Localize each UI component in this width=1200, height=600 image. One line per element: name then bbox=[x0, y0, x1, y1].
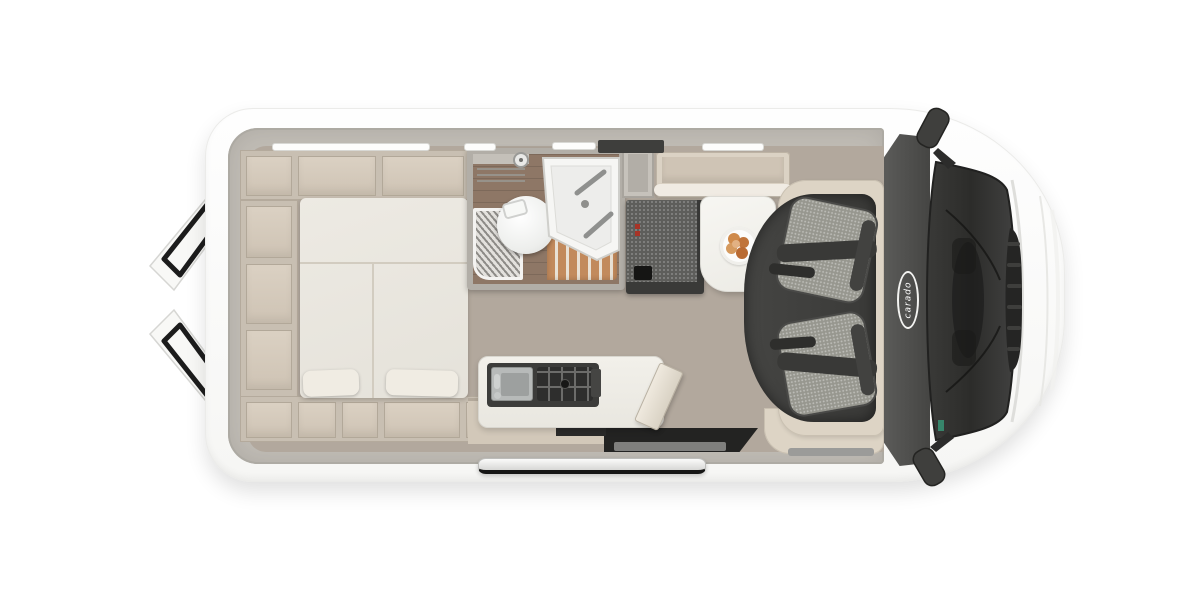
windshield-sticker bbox=[938, 420, 944, 431]
kitchen-faucet bbox=[494, 374, 500, 389]
door-pivot-pin bbox=[519, 158, 523, 162]
gas-hob bbox=[537, 367, 593, 401]
shelf-compartment bbox=[298, 156, 376, 196]
overhead-locker-dinette bbox=[656, 152, 790, 198]
bed-pillow bbox=[303, 369, 360, 397]
sliding-door-open bbox=[478, 458, 706, 474]
bench-foot-bracket bbox=[634, 266, 652, 280]
shelf-compartment bbox=[246, 264, 292, 324]
grille-slat bbox=[1007, 347, 1020, 351]
hob-control bbox=[591, 369, 601, 397]
dashboard-console bbox=[952, 238, 976, 274]
wardrobe-cabinet bbox=[622, 148, 654, 198]
roof-window bbox=[272, 143, 430, 151]
shelf-compartment bbox=[298, 402, 336, 438]
roof-window bbox=[702, 143, 764, 151]
cabinet-compartment bbox=[628, 154, 648, 192]
hob-burner bbox=[560, 379, 570, 389]
roof-window bbox=[552, 142, 596, 150]
entry-step bbox=[614, 442, 726, 451]
dashboard-console bbox=[952, 330, 976, 366]
bed-pillow bbox=[386, 369, 459, 397]
sink-drain bbox=[581, 200, 589, 208]
side-mirror-bottom bbox=[910, 432, 954, 489]
bumper-highlight bbox=[1052, 210, 1058, 390]
food-item bbox=[732, 240, 740, 248]
side-mirror-top bbox=[914, 105, 956, 169]
cab-graphic bbox=[890, 90, 1100, 510]
locker-front-lip bbox=[654, 184, 792, 196]
shelf-compartment bbox=[246, 156, 292, 196]
grille-slat bbox=[1007, 326, 1021, 330]
roof-window bbox=[464, 143, 496, 151]
driver-swivel-seat bbox=[774, 309, 879, 419]
shelf-compartment bbox=[246, 206, 292, 258]
shelf-compartment bbox=[246, 402, 292, 438]
food-item bbox=[736, 247, 748, 259]
hood-seam bbox=[1040, 196, 1048, 406]
faucet-knob bbox=[494, 392, 501, 399]
floorplan-canvas: carado bbox=[0, 0, 1200, 600]
bed-seam bbox=[372, 262, 374, 398]
locker-shelf bbox=[662, 157, 784, 183]
kitchen-sink bbox=[491, 367, 533, 401]
dinette-bench-seat bbox=[626, 200, 704, 294]
grille-slat bbox=[1007, 242, 1020, 246]
shelf-compartment bbox=[384, 402, 460, 438]
seatbelt-anchor bbox=[635, 224, 640, 229]
shelf-compartment bbox=[246, 330, 292, 390]
seatbelt-anchor bbox=[635, 231, 640, 236]
grille-slat bbox=[1007, 284, 1022, 288]
sink-bowl bbox=[501, 373, 529, 396]
bathroom-skylight bbox=[598, 140, 664, 153]
grille-slat bbox=[1007, 305, 1022, 309]
door-track bbox=[556, 428, 606, 436]
shelf-compartment bbox=[342, 402, 378, 438]
grille-slat bbox=[1007, 263, 1021, 267]
platform-step bbox=[788, 448, 874, 456]
